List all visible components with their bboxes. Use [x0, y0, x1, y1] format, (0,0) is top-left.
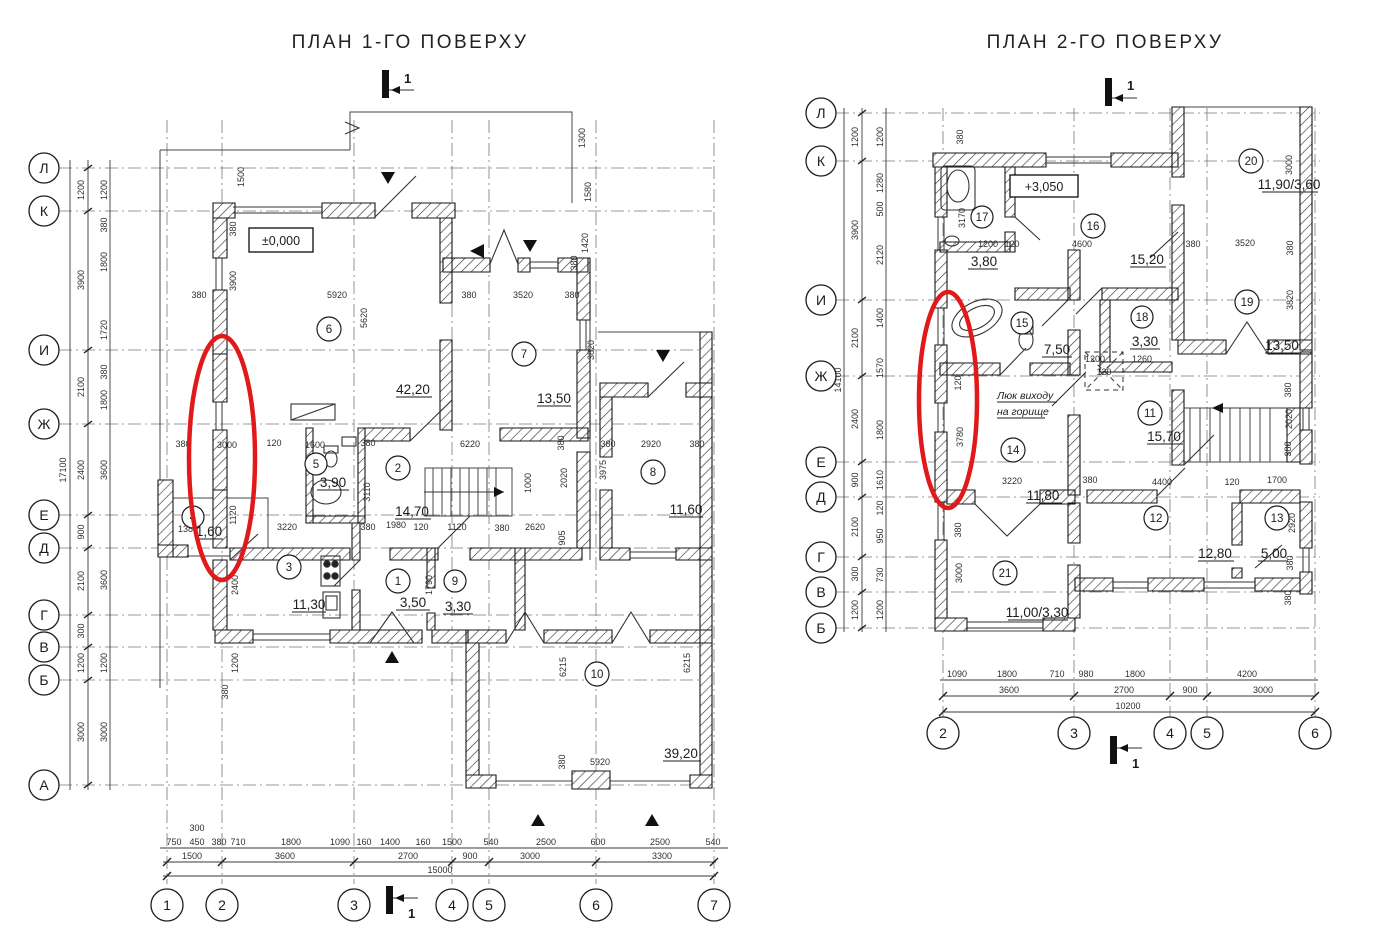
highlight-ellipse-plan2 [919, 292, 977, 508]
room-number: 6 [326, 324, 332, 336]
dim-label: 1600 [305, 440, 325, 450]
dim-label: 1200 [99, 653, 109, 673]
axis-label: 4 [448, 897, 456, 913]
dim-label: 1790 [424, 575, 434, 595]
dim-label: 380 [1185, 239, 1200, 249]
dim-label: 1200 [1085, 354, 1105, 364]
dim-label: 2700 [398, 851, 418, 861]
dim-label: 1420 [580, 233, 590, 253]
dim-label: 750 [166, 837, 181, 847]
dim-label: 2100 [850, 517, 860, 537]
dim-label: 4600 [1072, 239, 1092, 249]
dim-label: 1700 [1267, 475, 1287, 485]
dim-label: 380 [600, 439, 615, 449]
dim-label: 380 [1283, 441, 1293, 456]
bathtub-icon [946, 291, 1009, 345]
dim-label: 600 [590, 837, 605, 847]
dim-label: 3220 [277, 522, 297, 532]
room-number: 2 [395, 463, 401, 475]
dim-label: 3220 [1002, 476, 1022, 486]
dim-label: 380 [228, 221, 238, 236]
dim-label: 730 [875, 567, 885, 582]
dim-label: 2500 [650, 837, 670, 847]
dim-label: 1200 [76, 180, 86, 200]
room-number: 12 [1150, 513, 1163, 525]
dim-label: 905 [557, 530, 567, 545]
axis-label: В [816, 584, 825, 600]
plan2-rooms: 11 15,70 12 12,80 13 5,00 14 11,80 15 7,… [968, 149, 1320, 620]
dim-label: 5920 [590, 757, 610, 767]
dim-label: 2400 [850, 409, 860, 429]
dim-label: 1000 [523, 473, 533, 493]
dim-label: 1300 [577, 128, 587, 148]
room-area: 11,60 [670, 502, 703, 517]
section-label: 1 [1127, 78, 1134, 93]
dim-label: 1720 [99, 320, 109, 340]
dim-label: 3900 [228, 271, 238, 291]
axis-label: К [817, 153, 826, 169]
room-area: 14,70 [395, 504, 429, 519]
dim-label: 450 [189, 837, 204, 847]
dim-label: 5620 [359, 308, 369, 328]
dim-label: 380 [494, 523, 509, 533]
dim-label: 3000 [76, 722, 86, 742]
dim-label: 120 [266, 438, 281, 448]
dim-label: 2020 [559, 468, 569, 488]
dim-label: 3000 [520, 851, 540, 861]
dim-label: 380 [211, 837, 226, 847]
dim-label: 3600 [999, 685, 1019, 695]
dim-label: 120 [875, 500, 885, 515]
dim-label: 300 [76, 623, 86, 638]
dim-label: 1580 [583, 182, 593, 202]
plan1-title: ПЛАН 1-ГО ПОВЕРХУ [292, 32, 529, 53]
dim-total: 10200 [1115, 701, 1140, 711]
dim-label: 3000 [1253, 685, 1273, 695]
plan1-axis-bubbles: Л К И Ж Е Д Г В Б А 1 2 3 4 5 6 7 [29, 153, 730, 921]
floor-plan-2: ПЛАН 2-ГО ПОВЕРХУ Люк виходу на горище [806, 32, 1331, 771]
room-area: 42,20 [396, 382, 430, 397]
dim-label: 4400 [1152, 477, 1172, 487]
dim-label: 3600 [275, 851, 295, 861]
dim-label: 1260 [1132, 354, 1152, 364]
dim-label: 900 [850, 472, 860, 487]
dim-label: 1200 [76, 653, 86, 673]
dim-label: 2500 [536, 837, 556, 847]
dim-label: 6220 [460, 439, 480, 449]
axis-label: Ж [815, 368, 828, 384]
dim-label: 380 [461, 290, 476, 300]
plan1-left-dim-chain: 1200 3900 2100 2400 900 2100 300 1200 30… [58, 160, 110, 790]
hatch-note-line2: на горище [997, 406, 1049, 418]
axis-label: Д [39, 540, 49, 556]
axis-label: Б [816, 620, 825, 636]
dim-label: 3600 [99, 460, 109, 480]
dim-label: 300 [850, 566, 860, 581]
axis-label: И [816, 292, 826, 308]
dim-label: 3520 [513, 290, 533, 300]
axis-label: Б [39, 672, 48, 688]
section-label: 1 [408, 906, 415, 921]
dim-label: 1200 [978, 239, 998, 249]
dim-label: 6215 [558, 657, 568, 677]
dim-label: 1400 [875, 308, 885, 328]
room-number: 8 [650, 467, 656, 479]
dim-label: 380 [953, 522, 963, 537]
dim-label: 3600 [99, 570, 109, 590]
axis-label: Д [816, 489, 826, 505]
dim-label: 1800 [875, 420, 885, 440]
dim-label: 1500 [442, 837, 462, 847]
dim-label: 3820 [586, 340, 596, 360]
room-number: 19 [1241, 297, 1254, 309]
dim-label: 2100 [850, 328, 860, 348]
dim-label: 380 [1283, 590, 1293, 605]
dim-label: 1120 [228, 505, 238, 524]
dim-label: 380 [557, 754, 567, 769]
axis-label: 2 [939, 725, 947, 741]
room-area: 3,80 [971, 254, 997, 269]
dim-label: 3900 [76, 270, 86, 290]
room-number: 14 [1007, 445, 1020, 457]
dim-label: 1800 [99, 390, 109, 410]
dim-label: 950 [875, 528, 885, 543]
dim-label: 3170 [957, 208, 967, 228]
dim-label: 120 [413, 522, 428, 532]
section-mark-bottom-right: 1 [1110, 736, 1142, 771]
room-area: 1,60 [196, 524, 222, 539]
room-number: 17 [976, 212, 989, 224]
axis-label: В [39, 639, 48, 655]
axis-label: Г [40, 607, 48, 623]
dim-label: 380 [564, 290, 579, 300]
axis-label: 4 [1166, 725, 1174, 741]
dim-label: 380 [955, 129, 965, 144]
axis-label: 6 [592, 897, 600, 913]
dim-label: 1800 [99, 252, 109, 272]
axis-label: 5 [485, 897, 493, 913]
dim-label: 380 [99, 364, 109, 379]
dim-label: 1200 [230, 653, 240, 673]
dim-label: 1800 [997, 669, 1017, 679]
dim-label: 1610 [875, 470, 885, 490]
axis-label: 1 [163, 897, 171, 913]
room-number: 20 [1245, 156, 1258, 168]
axis-label: 7 [710, 897, 718, 913]
dim-label: 380 [689, 439, 704, 449]
dim-label: 1980 [386, 520, 406, 530]
dim-label: 1090 [947, 669, 967, 679]
dim-label: 1120 [447, 522, 466, 532]
dim-label: 710 [1049, 669, 1064, 679]
plan2-grid [836, 108, 1320, 718]
dim-label: 1280 [875, 173, 885, 193]
axis-label: Ж [38, 416, 51, 432]
room-area: 11,90/3,60 [1258, 177, 1321, 192]
dim-label: 1800 [1125, 669, 1145, 679]
dim-label: 3820 [1285, 290, 1295, 310]
axis-label: 2 [218, 897, 226, 913]
dim-label: 380 [360, 438, 375, 448]
dim-label: 380 [569, 255, 579, 270]
dim-label: 2020 [1284, 409, 1294, 429]
plan1-grid [59, 120, 714, 884]
dim-label: 1570 [875, 358, 885, 378]
axis-label: Е [816, 454, 825, 470]
dim-label: 900 [1182, 685, 1197, 695]
axis-label: Л [816, 105, 825, 121]
plan2-bottom-dim-chain: 1090 1800 710 980 1800 4200 3600 2700 90… [939, 669, 1319, 716]
dim-label: 1500 [182, 851, 202, 861]
room-area: 7,50 [1044, 342, 1070, 357]
hatch-note-line1: Люк виходу [996, 390, 1054, 402]
dim-label: 120 [953, 375, 963, 390]
dim-label: 540 [483, 837, 498, 847]
axis-label: А [39, 777, 49, 793]
room-area: 3,50 [400, 595, 426, 610]
dim-label: 300 [189, 823, 204, 833]
dim-label: 3300 [652, 851, 672, 861]
room-number: 15 [1016, 318, 1029, 330]
dim-label: 2920 [641, 439, 661, 449]
axis-label: 3 [350, 897, 358, 913]
section-mark-top-right: 1 [1105, 78, 1137, 106]
dim-label: 380 [99, 217, 109, 232]
room-area: 3,90 [320, 475, 346, 490]
plan1-walls [158, 203, 712, 789]
plan2-arrows [1212, 403, 1223, 413]
dim-label: 2100 [76, 571, 86, 591]
room-number: 11 [1144, 408, 1156, 420]
axis-label: К [40, 203, 49, 219]
axis-label: 5 [1203, 725, 1211, 741]
dim-label: 3520 [1235, 238, 1255, 248]
dim-label: 2700 [1114, 685, 1134, 695]
room-area: 15,20 [1130, 252, 1164, 267]
dim-label: 1400 [380, 837, 400, 847]
dim-label: 6215 [682, 653, 692, 673]
room-area: 11,30 [293, 597, 326, 612]
dim-label: 3000 [954, 563, 964, 583]
dim-label: 2620 [525, 522, 545, 532]
dim-label: 380 [360, 522, 375, 532]
dim-label: 160 [356, 837, 371, 847]
dim-label: 380 [220, 684, 230, 699]
dim-label: 1090 [330, 837, 350, 847]
dim-label: 3110 [362, 482, 372, 501]
dim-label: 5920 [327, 290, 347, 300]
room-number: 16 [1087, 221, 1100, 233]
room-area: 13,50 [537, 391, 571, 406]
room-area: 11,00/3,30 [1006, 605, 1069, 620]
dim-label: 160 [415, 837, 430, 847]
room-area: 3,30 [1132, 334, 1158, 349]
axis-label: Л [39, 160, 48, 176]
dim-label: 3000 [99, 722, 109, 742]
room-area: 3,30 [445, 599, 471, 614]
room-number: 9 [452, 576, 458, 588]
blueprint-canvas: ПЛАН 1-ГО ПОВЕРХУ [0, 0, 1393, 947]
dim-label: 500 [875, 201, 885, 216]
room-area: 13,50 [1265, 338, 1299, 353]
dim-label: 120 [1096, 367, 1111, 377]
dim-label: 710 [230, 837, 245, 847]
dim-label: 1200 [850, 127, 860, 147]
elevation-value: ±0,000 [262, 234, 300, 248]
section-label: 1 [404, 71, 411, 86]
dim-label: 1800 [281, 837, 301, 847]
dim-label: 380 [191, 290, 206, 300]
axis-label: Г [817, 549, 825, 565]
dim-label: 380 [556, 435, 566, 450]
plan2-left-dim-chain: 1200 3900 2100 2400 900 2100 300 1200 14… [833, 108, 886, 632]
dim-label: 3780 [955, 427, 965, 447]
dim-label: 900 [462, 851, 477, 861]
room-area: 39,20 [664, 746, 698, 761]
dim-label: 980 [1078, 669, 1093, 679]
dim-label: 1200 [850, 600, 860, 620]
dim-label: 1200 [875, 600, 885, 620]
room-area: 15,70 [1147, 429, 1181, 444]
dim-label: 2100 [76, 377, 86, 397]
axis-label: Е [39, 507, 48, 523]
room-number: 3 [286, 562, 292, 574]
plan1-bottom-dim-chain: 750 450 380 710 1800 1090 160 1400 160 1… [160, 823, 728, 880]
dim-label: 3900 [850, 220, 860, 240]
room-number: 7 [521, 349, 527, 361]
room-number: 5 [313, 459, 319, 471]
dim-label: 900 [76, 524, 86, 539]
dim-label: 120 [1004, 239, 1019, 249]
dim-label: 380 [1283, 382, 1293, 397]
dim-total: 17100 [58, 457, 68, 482]
dim-total: 15000 [427, 865, 452, 875]
plan2-title: ПЛАН 2-ГО ПОВЕРХУ [987, 32, 1224, 53]
room-area: 5,00 [1261, 546, 1287, 561]
room-number: 18 [1136, 312, 1149, 324]
room-number: 1 [395, 576, 401, 588]
dim-label: 540 [705, 837, 720, 847]
dim-label: 1200 [875, 127, 885, 147]
dim-label: 120 [1224, 477, 1239, 487]
elevation-value: +3,050 [1025, 180, 1064, 194]
room-area: 12,80 [1198, 546, 1232, 561]
room-number: 13 [1271, 513, 1284, 525]
floor-plan-1: ПЛАН 1-ГО ПОВЕРХУ [29, 32, 730, 921]
section-label: 1 [1132, 756, 1139, 771]
dim-label: 3975 [598, 460, 608, 480]
axis-label: 6 [1311, 725, 1319, 741]
dim-label: 3000 [217, 440, 237, 450]
dim-label: 4200 [1237, 669, 1257, 679]
section-mark-bottom-left: 1 [386, 886, 418, 921]
room-number: 21 [999, 568, 1012, 580]
dim-label: 1500 [236, 167, 246, 187]
dim-label: 380 [1285, 240, 1295, 255]
room-area: 11,80 [1027, 488, 1060, 503]
dim-label: 2120 [875, 245, 885, 265]
axis-label: 3 [1070, 725, 1078, 741]
room-number: 10 [591, 669, 604, 681]
plan1-fixtures [291, 404, 356, 618]
section-mark-top-left: 1 [382, 70, 414, 98]
dim-label: 1200 [99, 180, 109, 200]
dim-label: 380 [1082, 475, 1097, 485]
dim-label: 2400 [76, 460, 86, 480]
dim-label: 3000 [1284, 155, 1294, 175]
axis-label: И [39, 342, 49, 358]
